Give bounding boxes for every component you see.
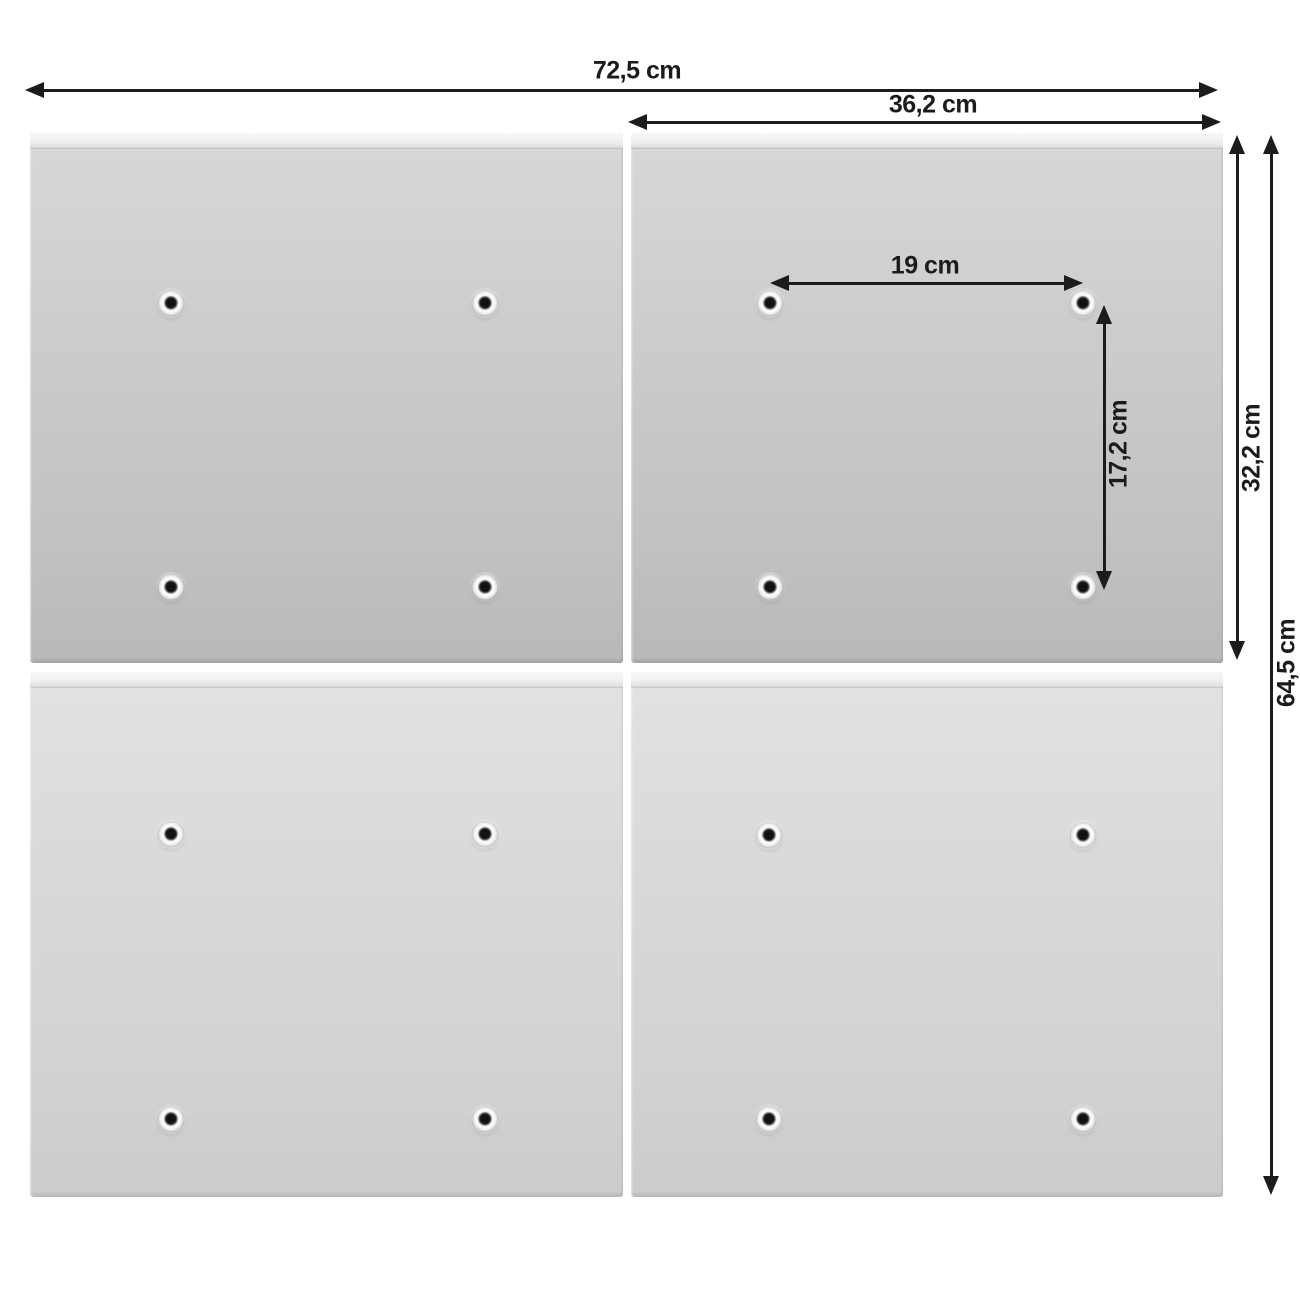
panel-height-arrow xyxy=(1229,135,1245,660)
mounting-hole xyxy=(157,290,185,318)
mounting-hole xyxy=(756,574,784,602)
mounting-hole xyxy=(157,574,185,602)
panel-dimension-diagram: 72,5 cm 36,2 cm 19 cm 17,2 cm 32,2 cm 64… xyxy=(0,0,1300,1300)
panel-width-label: 36,2 cm xyxy=(889,91,977,120)
total-height-label: 64,5 cm xyxy=(1273,619,1300,707)
mounting-hole xyxy=(1069,574,1097,602)
panel-bottom-right xyxy=(631,672,1223,1197)
total-width-label: 72,5 cm xyxy=(593,57,681,86)
mounting-hole xyxy=(755,822,783,850)
mounting-hole xyxy=(1069,1106,1097,1134)
panel-height-label: 32,2 cm xyxy=(1238,404,1267,492)
panel-top-right xyxy=(631,133,1223,663)
mounting-hole xyxy=(1069,290,1097,318)
panel-bottom-left xyxy=(30,672,623,1197)
mounting-hole xyxy=(471,290,499,318)
mounting-hole xyxy=(157,821,185,849)
mounting-hole xyxy=(1069,822,1097,850)
mounting-hole xyxy=(756,290,784,318)
panel-top-left xyxy=(30,133,623,663)
mounting-hole xyxy=(755,1106,783,1134)
mounting-hole xyxy=(471,1106,499,1134)
mounting-hole xyxy=(157,1106,185,1134)
hole-spacing-width-label: 19 cm xyxy=(891,252,959,281)
hole-spacing-height-label: 17,2 cm xyxy=(1105,400,1134,488)
mounting-hole xyxy=(471,821,499,849)
mounting-hole xyxy=(471,574,499,602)
